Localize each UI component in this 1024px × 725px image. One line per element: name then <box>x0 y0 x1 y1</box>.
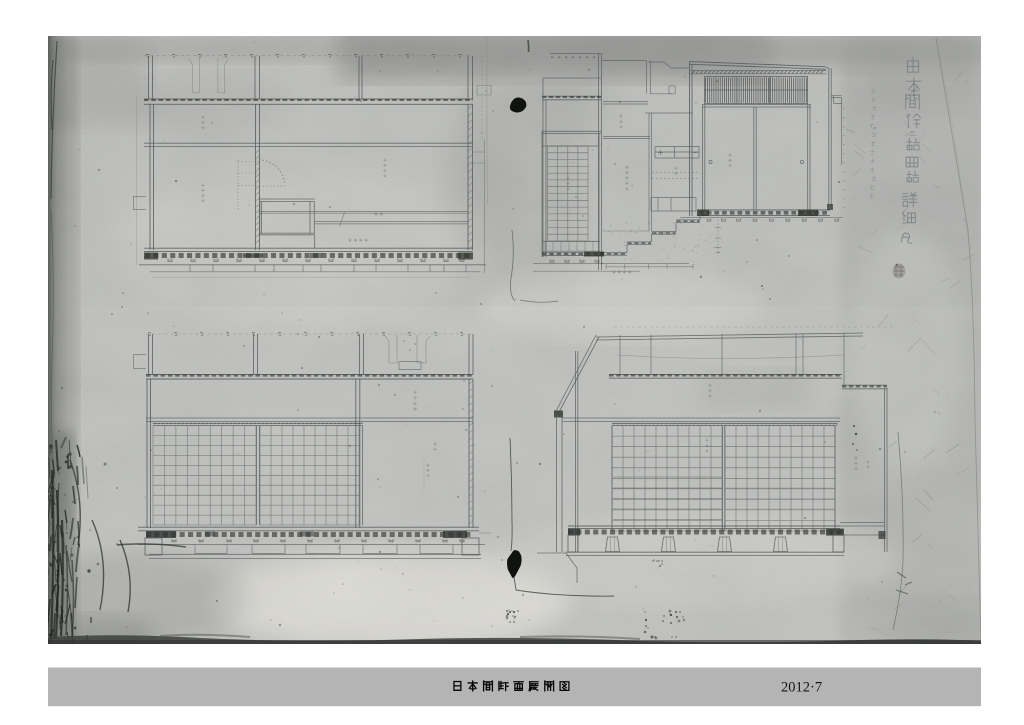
svg-text:2012·7: 2012·7 <box>781 680 822 696</box>
